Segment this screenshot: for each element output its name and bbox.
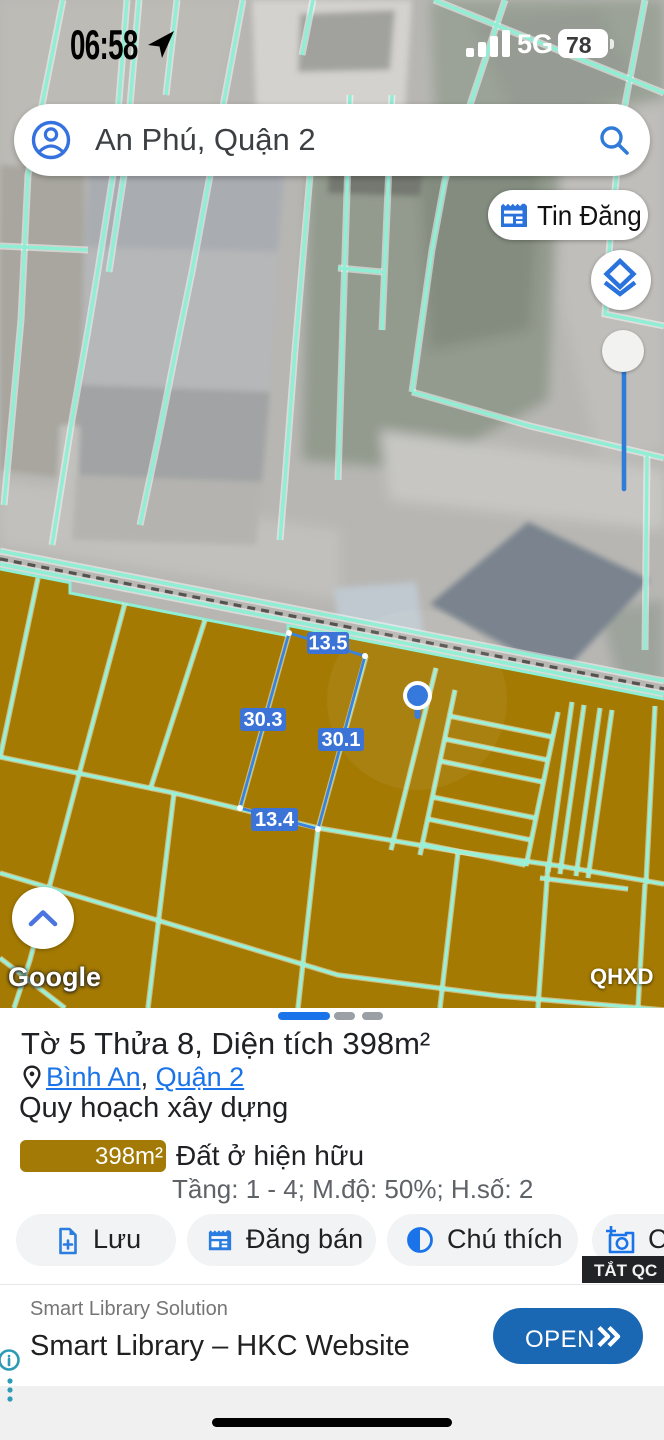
svg-text:13.4: 13.4 (255, 809, 295, 831)
svg-text:30.1: 30.1 (322, 729, 361, 751)
svg-text:30.3: 30.3 (244, 709, 283, 731)
svg-text:13.5: 13.5 (309, 633, 348, 655)
